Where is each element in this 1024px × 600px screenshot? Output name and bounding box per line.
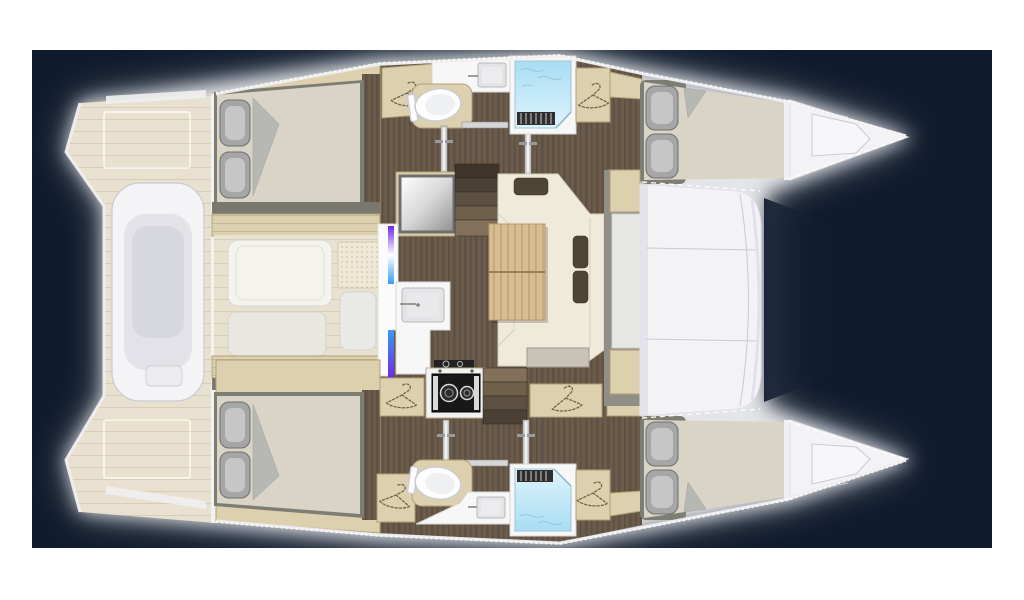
accent-light-strip [388,226,394,284]
wardrobe [530,384,602,417]
stairs-bottom [483,368,527,424]
pillow-highlight [651,476,673,508]
sink-basin [482,67,502,83]
wardrobe [576,470,610,520]
pillow-highlight [225,158,245,192]
stove-rail [433,376,438,410]
shower-grate [517,470,553,482]
foredeck-surface [640,184,761,416]
door-leaf [462,122,508,128]
page: dark navy panel centered on white page w… [0,0,1024,600]
dinghy-hull-floor [132,226,184,338]
cabinet [610,350,640,394]
sofa-cushion [514,178,548,195]
grate-slats [521,113,551,124]
floorplan-svg: dark navy panel centered on white page w… [0,0,1024,600]
cockpit-seat [228,312,326,356]
sofa-cushion [573,236,588,268]
mirror [400,176,454,232]
cabinet-band [212,214,380,236]
pillow-highlight [651,140,673,172]
stove-rail [474,376,479,410]
pillow-highlight [225,106,245,140]
windshield-base [612,214,640,348]
stove-knob [438,369,441,372]
stove-knob [470,369,473,372]
pillow-highlight [225,408,245,442]
cabinet [610,491,642,516]
accent-light-strip [388,330,394,378]
textured-seat-dots [338,242,378,288]
cockpit-sunpad [228,240,332,306]
cabin-floor-strip [362,74,380,210]
cabin-wall [212,202,380,214]
burner-small [461,387,474,400]
dinghy-outboard [146,366,182,386]
sink-basin [481,500,501,515]
pillow-highlight [651,428,673,460]
sofa-cushion [573,271,588,303]
wardrobe [380,378,424,416]
cockpit-module [340,292,376,350]
cabin-aft-bottom: Aft double cabin (lower hull) with pillo… [214,360,380,533]
cabinet [610,170,640,212]
pillow-highlight [651,92,673,124]
sideboard [527,348,589,367]
pillow-highlight [225,458,245,492]
sink-basin [407,293,439,317]
burner-large [441,385,458,402]
faucet-knob [416,303,420,307]
foredeck-shade [640,184,648,416]
